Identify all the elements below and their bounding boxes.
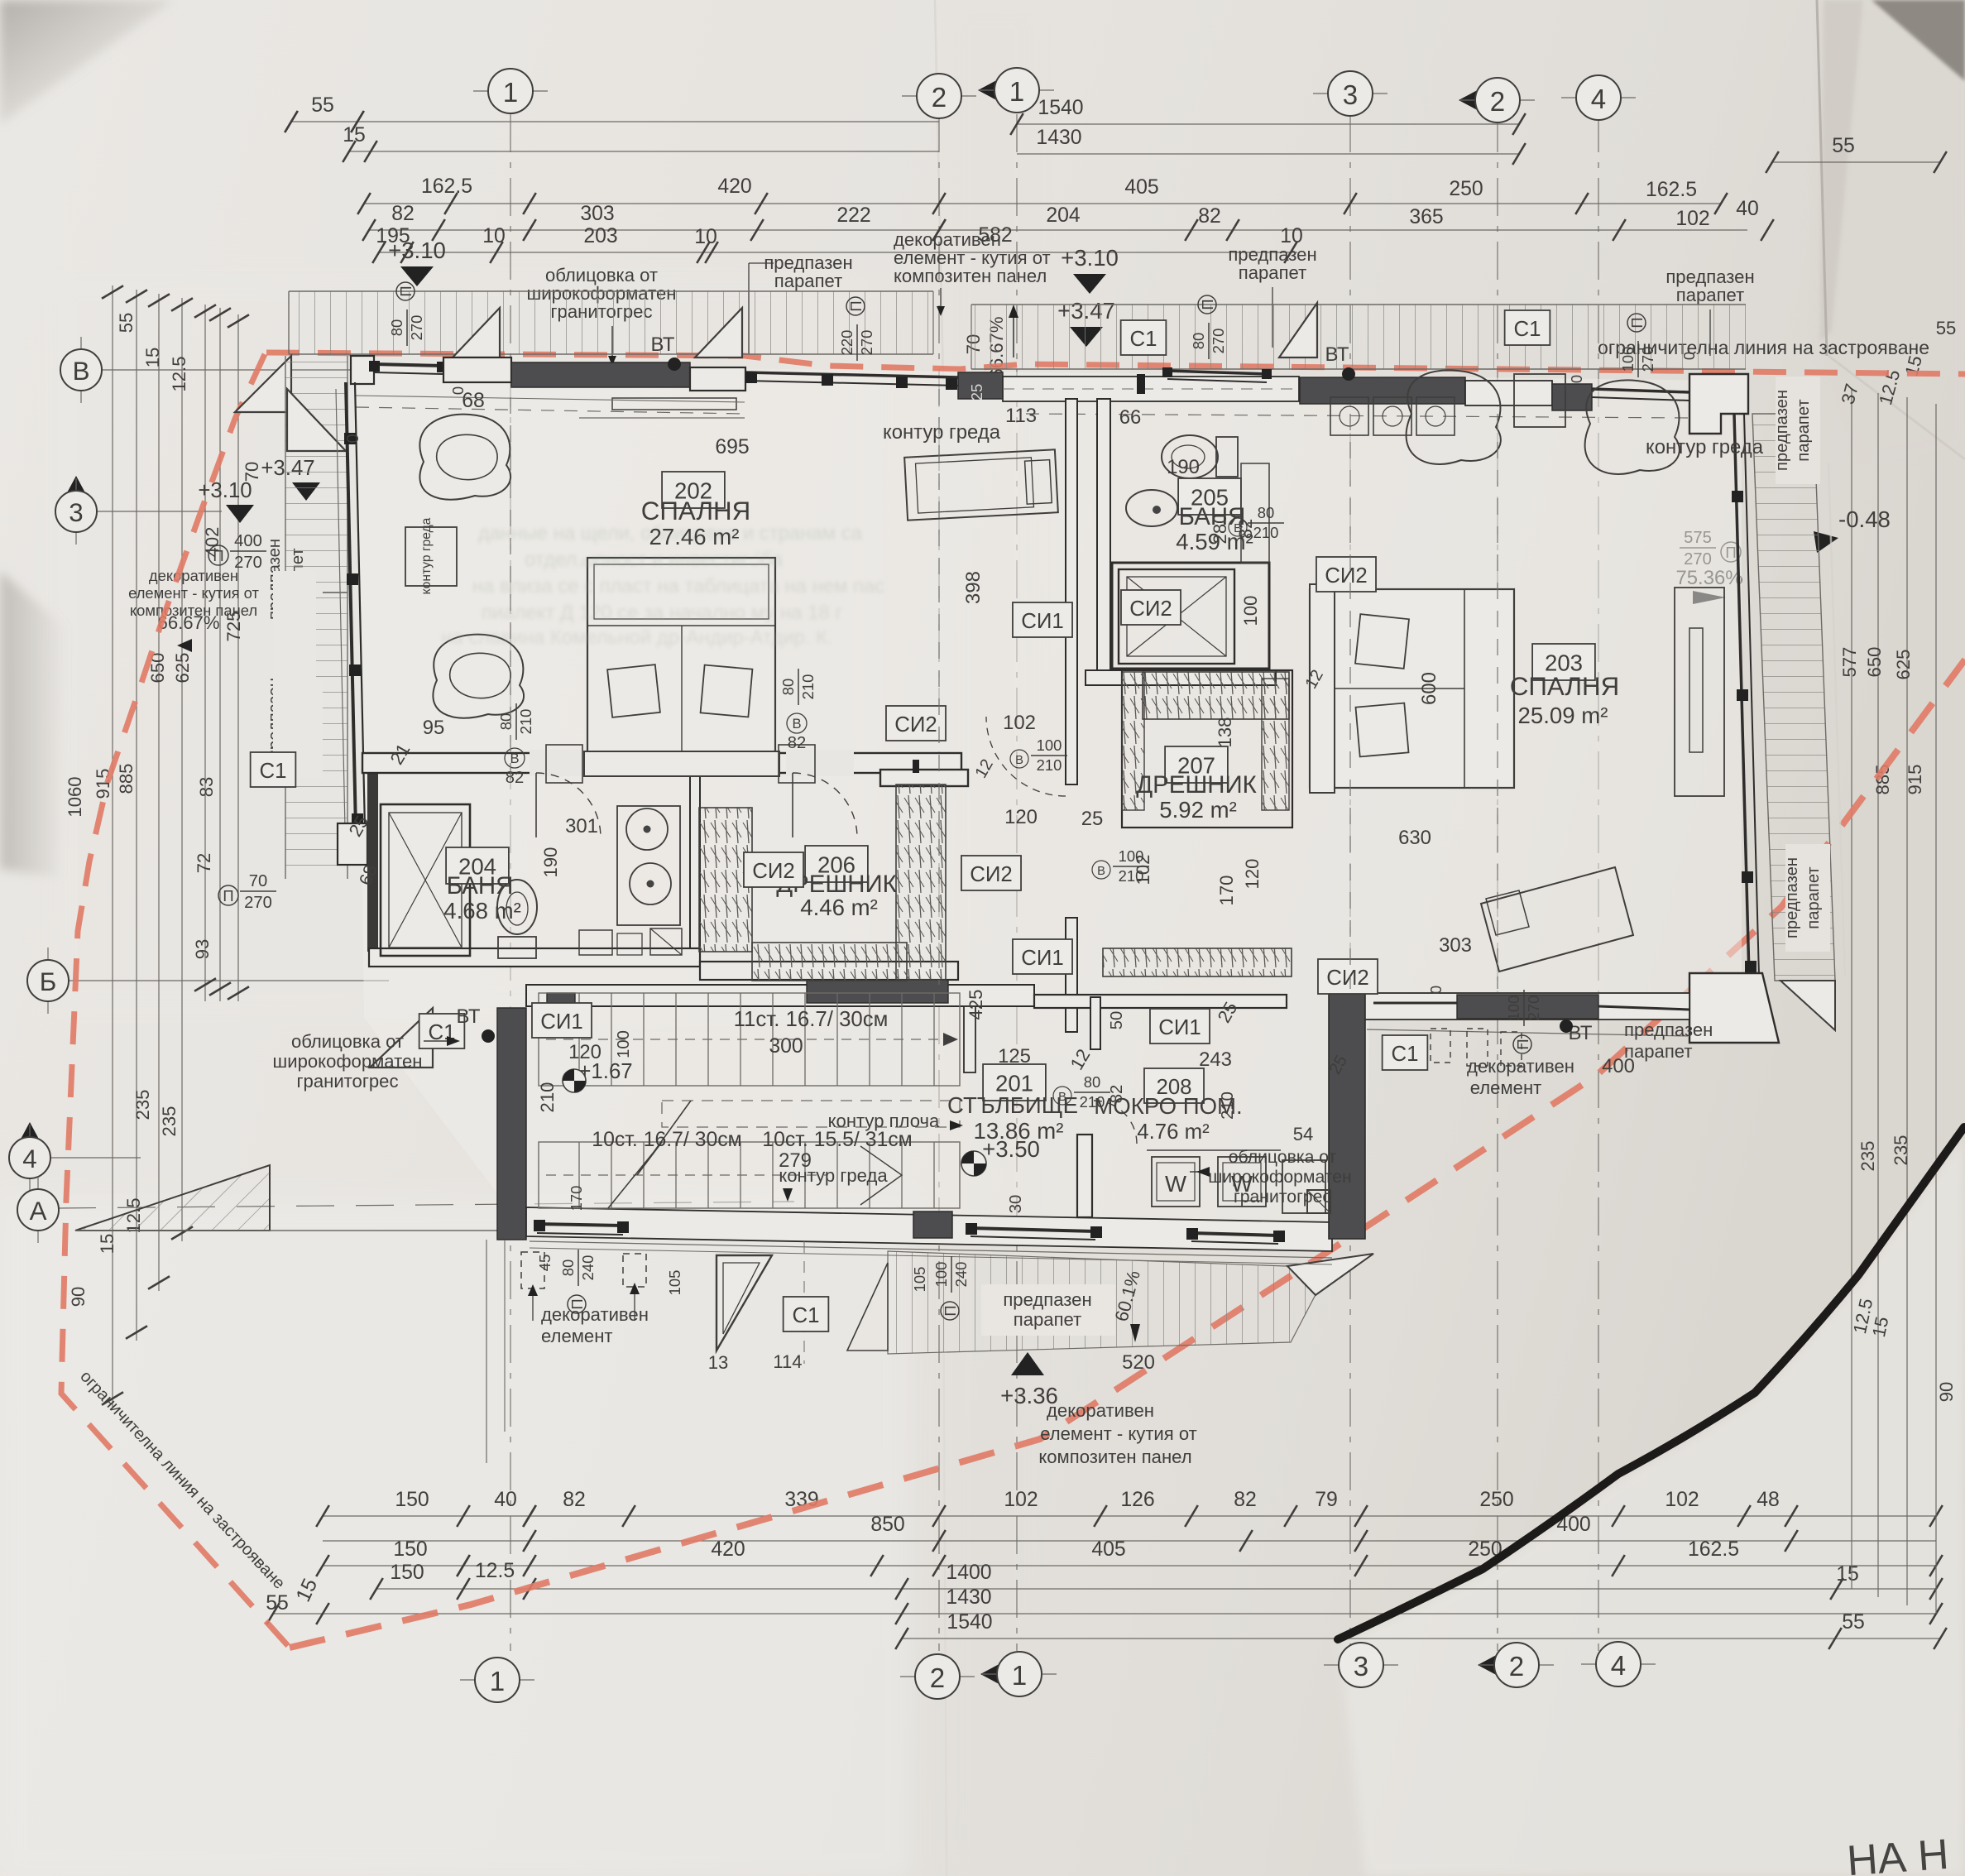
svg-text:162.5: 162.5 (1688, 1538, 1739, 1561)
svg-text:420: 420 (711, 1538, 745, 1561)
svg-text:83: 83 (196, 777, 217, 798)
svg-text:12.5: 12.5 (169, 356, 189, 391)
svg-text:120: 120 (1242, 859, 1263, 890)
svg-text:150: 150 (393, 1538, 427, 1561)
svg-text:3: 3 (69, 498, 83, 527)
svg-text:СИ1: СИ1 (1158, 1016, 1201, 1039)
svg-text:СИ2: СИ2 (1129, 597, 1172, 621)
svg-text:650: 650 (1864, 647, 1885, 678)
svg-text:контур греда: контур греда (419, 517, 434, 594)
svg-text:П: П (223, 887, 233, 904)
svg-text:2: 2 (930, 1663, 945, 1694)
svg-text:Б: Б (40, 967, 57, 996)
svg-text:СИ2: СИ2 (1326, 967, 1369, 990)
svg-text:235: 235 (132, 1090, 153, 1120)
svg-text:222: 222 (836, 204, 870, 227)
svg-text:102: 102 (1675, 208, 1709, 230)
svg-text:предпазен: предпазен (1783, 857, 1801, 938)
svg-text:520: 520 (1122, 1351, 1155, 1374)
svg-text:ВТ: ВТ (457, 1005, 481, 1028)
svg-text:100: 100 (1619, 347, 1637, 372)
svg-text:210: 210 (537, 1082, 558, 1113)
svg-text:декоративен: декоративен (149, 567, 238, 584)
svg-text:на влиза се с пласт на таблица: на влиза се с пласт на таблицата на нем … (472, 575, 884, 597)
svg-text:55: 55 (1832, 135, 1855, 157)
svg-text:12.5: 12.5 (475, 1560, 515, 1582)
svg-text:4: 4 (1611, 1651, 1626, 1682)
svg-text:850: 850 (870, 1514, 904, 1536)
svg-text:10ст. 15.5/ 31см: 10ст. 15.5/ 31см (762, 1129, 912, 1151)
svg-text:БАНЯ: БАНЯ (447, 872, 514, 900)
svg-text:240: 240 (579, 1255, 597, 1281)
svg-text:0: 0 (344, 434, 362, 443)
svg-text:138: 138 (1215, 717, 1235, 748)
svg-text:210: 210 (1253, 524, 1279, 541)
svg-text:0: 0 (1680, 352, 1698, 360)
svg-text:50: 50 (1108, 1011, 1126, 1029)
svg-text:контур греда: контур греда (883, 421, 1001, 444)
svg-text:елемент - кутия от: елемент - кутия от (1040, 1423, 1197, 1444)
svg-text:1: 1 (1012, 1661, 1027, 1691)
svg-text:4.46 m²: 4.46 m² (800, 895, 878, 920)
svg-text:270: 270 (1210, 329, 1227, 354)
svg-text:2: 2 (1509, 1652, 1524, 1682)
svg-text:В: В (1015, 754, 1023, 767)
svg-text:82: 82 (788, 734, 806, 752)
svg-text:102: 102 (1665, 1489, 1699, 1511)
svg-text:П: П (942, 1305, 959, 1316)
svg-text:100: 100 (1505, 996, 1522, 1021)
svg-text:600: 600 (1418, 672, 1440, 705)
svg-text:С1: С1 (1130, 328, 1157, 351)
svg-text:+3.10: +3.10 (1061, 245, 1119, 271)
svg-text:400: 400 (1602, 1055, 1635, 1077)
svg-text:0: 0 (1568, 375, 1585, 383)
svg-text:48: 48 (1757, 1489, 1780, 1511)
svg-text:126: 126 (1120, 1489, 1154, 1511)
svg-text:27.46 m²: 27.46 m² (649, 524, 740, 549)
svg-text:80: 80 (1084, 1073, 1100, 1091)
svg-text:предпазен: предпазен (1003, 1289, 1091, 1310)
svg-text:предпазен: предпазен (1624, 1020, 1713, 1040)
svg-text:СИ1: СИ1 (1021, 947, 1064, 970)
svg-text:3: 3 (1343, 80, 1358, 111)
svg-text:405: 405 (1124, 176, 1158, 199)
svg-text:+3.10: +3.10 (388, 237, 446, 263)
svg-text:-0.48: -0.48 (1838, 506, 1891, 532)
svg-text:15: 15 (142, 348, 163, 368)
svg-text:5.92 m²: 5.92 m² (1159, 797, 1237, 823)
svg-text:1400: 1400 (946, 1562, 991, 1584)
svg-text:66: 66 (1119, 406, 1142, 429)
svg-text:240: 240 (952, 1262, 970, 1288)
svg-text:СИ2: СИ2 (970, 863, 1013, 886)
svg-text:декоративен: декоративен (1467, 1056, 1574, 1077)
svg-text:СИ2: СИ2 (752, 860, 795, 883)
svg-text:82: 82 (1108, 1085, 1126, 1103)
svg-text:парапет: парапет (774, 271, 842, 291)
svg-text:парапет: парапет (1676, 285, 1744, 305)
svg-text:398: 398 (962, 571, 985, 604)
svg-text:150: 150 (390, 1562, 424, 1584)
svg-text:55: 55 (116, 313, 137, 333)
svg-text:300: 300 (769, 1035, 803, 1058)
svg-text:11ст. 16.7/ 30см: 11ст. 16.7/ 30см (734, 1008, 889, 1031)
svg-text:40: 40 (1736, 198, 1759, 220)
svg-text:210: 210 (1119, 867, 1144, 885)
svg-text:П: П (1514, 1039, 1531, 1049)
svg-text:70: 70 (249, 872, 267, 890)
svg-text:405: 405 (1091, 1538, 1125, 1561)
svg-text:577: 577 (1839, 647, 1860, 678)
svg-text:82: 82 (391, 203, 415, 225)
svg-text:170: 170 (1216, 876, 1237, 906)
svg-text:10: 10 (694, 226, 717, 248)
svg-text:220: 220 (838, 330, 855, 356)
svg-text:114: 114 (773, 1351, 802, 1372)
svg-text:55: 55 (1842, 1611, 1865, 1634)
svg-text:4.76 m²: 4.76 m² (1137, 1120, 1210, 1144)
svg-text:1540: 1540 (1038, 97, 1083, 119)
svg-text:П: П (213, 547, 223, 564)
svg-text:4: 4 (22, 1144, 36, 1173)
svg-text:72: 72 (194, 853, 214, 874)
svg-text:широкоформатен: широкоформатен (273, 1051, 423, 1072)
svg-text:контур плоча: контур плоча (828, 1111, 940, 1131)
svg-text:210: 210 (1037, 756, 1062, 774)
svg-text:отделചлност и инвестигරба: отделചлност и инвестигරба (525, 549, 784, 571)
svg-text:25: 25 (968, 384, 985, 401)
svg-text:С1: С1 (793, 1304, 820, 1327)
svg-text:55: 55 (311, 94, 334, 117)
svg-text:915: 915 (1905, 765, 1925, 795)
svg-text:102: 102 (1003, 712, 1036, 734)
svg-text:елемент: елемент (541, 1326, 613, 1346)
svg-text:80: 80 (779, 679, 797, 695)
svg-text:15: 15 (97, 1234, 117, 1255)
svg-text:102: 102 (1004, 1489, 1038, 1511)
svg-text:1060: 1060 (65, 776, 85, 817)
svg-text:210: 210 (1219, 1092, 1237, 1120)
svg-text:+1.67: +1.67 (578, 1060, 632, 1083)
svg-text:парапет: парапет (1014, 1309, 1081, 1330)
svg-text:декоративен: декоративен (1047, 1400, 1154, 1421)
svg-text:625: 625 (172, 653, 193, 684)
svg-text:170: 170 (568, 1186, 585, 1211)
svg-text:СИ2: СИ2 (1325, 564, 1368, 588)
svg-text:4: 4 (1591, 84, 1606, 115)
svg-text:204: 204 (1046, 204, 1081, 227)
svg-text:303: 303 (580, 203, 614, 225)
svg-text:100: 100 (615, 1030, 633, 1058)
svg-text:10ст. 16.7/ 30см: 10ст. 16.7/ 30см (592, 1129, 741, 1151)
svg-text:270: 270 (858, 330, 875, 356)
svg-text:предпазен: предпазен (1773, 390, 1791, 471)
svg-text:303: 303 (1439, 934, 1472, 957)
svg-text:НА Н: НА Н (1845, 1830, 1950, 1876)
svg-text:А: А (30, 1197, 47, 1226)
svg-text:парапет: парапет (1804, 866, 1823, 928)
svg-text:82: 82 (1234, 1489, 1257, 1511)
svg-text:гранитогрес: гранитогрес (1234, 1187, 1331, 1207)
svg-text:композитен панел: композитен панел (894, 266, 1047, 286)
svg-text:250: 250 (1449, 178, 1483, 200)
svg-text:80: 80 (497, 713, 515, 730)
svg-text:25: 25 (1081, 808, 1104, 830)
svg-text:декоративен: декоративен (541, 1304, 649, 1325)
svg-text:250: 250 (1479, 1489, 1513, 1511)
svg-text:ВТ: ВТ (651, 333, 675, 356)
svg-text:270: 270 (234, 554, 262, 572)
svg-text:В: В (73, 357, 90, 386)
svg-text:15: 15 (1868, 1315, 1893, 1339)
svg-text:203: 203 (583, 225, 617, 247)
svg-text:630: 630 (1398, 827, 1431, 849)
svg-text:С1: С1 (1392, 1043, 1419, 1066)
svg-text:243: 243 (1199, 1048, 1232, 1071)
svg-text:270: 270 (244, 894, 272, 912)
svg-text:0: 0 (1427, 986, 1445, 994)
svg-text:210: 210 (799, 674, 817, 700)
svg-text:82: 82 (1198, 205, 1221, 228)
svg-text:СИ1: СИ1 (540, 1010, 583, 1034)
svg-text:контур греда: контур греда (1646, 436, 1764, 458)
svg-text:П: П (1628, 317, 1646, 328)
svg-text:СПАЛНЯ: СПАЛНЯ (1510, 672, 1619, 701)
svg-text:82: 82 (506, 769, 524, 787)
svg-text:235: 235 (159, 1106, 180, 1137)
svg-text:210: 210 (1080, 1093, 1105, 1111)
svg-text:105: 105 (666, 1270, 683, 1296)
svg-text:235: 235 (1891, 1135, 1911, 1166)
svg-text:120: 120 (1004, 806, 1038, 828)
svg-text:1: 1 (503, 78, 518, 108)
svg-text:270: 270 (1525, 996, 1542, 1021)
svg-text:79: 79 (1315, 1489, 1338, 1511)
svg-text:парапет: парапет (1239, 262, 1306, 283)
svg-text:В: В (792, 716, 801, 732)
svg-text:695: 695 (715, 436, 749, 458)
svg-text:80: 80 (559, 1259, 577, 1276)
svg-text:365: 365 (1409, 206, 1443, 228)
svg-text:1: 1 (490, 1667, 505, 1697)
svg-text:ВТ: ВТ (1325, 343, 1349, 366)
svg-text:425: 425 (966, 990, 986, 1020)
svg-text:С1: С1 (1514, 318, 1541, 341)
svg-text:105: 105 (911, 1267, 928, 1293)
svg-text:55: 55 (266, 1592, 289, 1615)
svg-text:0: 0 (449, 386, 467, 395)
svg-text:на славина Комельной др-Андир: на славина Комельной др-Андир-Атдир. К. (441, 626, 832, 649)
svg-text:композитен панел: композитен панел (1038, 1447, 1191, 1467)
svg-text:С1: С1 (260, 760, 287, 783)
svg-text:облицовка от: облицовка от (291, 1031, 404, 1052)
svg-text:55: 55 (1936, 318, 1957, 338)
svg-text:В: В (510, 751, 519, 766)
svg-text:150: 150 (395, 1489, 429, 1511)
svg-text:1540: 1540 (947, 1611, 992, 1634)
svg-text:парапет: парапет (1795, 399, 1813, 461)
svg-text:270: 270 (1639, 347, 1656, 372)
svg-text:+3.10: +3.10 (198, 479, 252, 502)
svg-text:П: П (397, 285, 415, 296)
svg-text:4.68 m²: 4.68 m² (443, 898, 521, 924)
svg-text:90: 90 (1936, 1382, 1957, 1403)
svg-text:885: 885 (116, 764, 137, 794)
svg-text:80: 80 (388, 319, 405, 336)
svg-text:270: 270 (408, 315, 425, 341)
svg-text:210: 210 (517, 709, 534, 735)
svg-text:400: 400 (234, 532, 262, 550)
svg-text:625: 625 (1893, 650, 1914, 680)
svg-text:пиалект Д 120 се за начално му: пиалект Д 120 се за начално му на 18 г (482, 602, 843, 624)
svg-text:гранитогрес: гранитогрес (296, 1071, 398, 1092)
svg-text:90: 90 (68, 1287, 89, 1307)
svg-text:ДРЕШНИК: ДРЕШНИК (1136, 771, 1257, 799)
svg-text:П: П (1199, 299, 1216, 309)
svg-text:100: 100 (932, 1262, 950, 1288)
svg-text:162.5: 162.5 (1646, 179, 1697, 201)
svg-text:95: 95 (423, 717, 445, 739)
svg-text:190: 190 (540, 847, 561, 878)
svg-text:54: 54 (1293, 1124, 1314, 1144)
svg-text:1430: 1430 (1036, 127, 1081, 149)
svg-text:301: 301 (565, 815, 598, 837)
svg-text:3: 3 (1354, 1652, 1368, 1682)
svg-text:облицовка от: облицовка от (1229, 1148, 1337, 1167)
svg-text:контур греда: контур греда (779, 1165, 888, 1186)
svg-text:190: 190 (1167, 456, 1200, 478)
svg-text:93: 93 (192, 939, 213, 960)
svg-text:25.09 m²: 25.09 m² (1518, 703, 1608, 728)
svg-text:елемент - кутия от: елемент - кутия от (128, 584, 259, 602)
svg-text:45: 45 (536, 1255, 554, 1271)
svg-text:П: П (568, 1298, 586, 1309)
svg-text:113: 113 (1005, 405, 1037, 427)
svg-text:40: 40 (494, 1489, 517, 1511)
svg-text:100: 100 (1119, 847, 1144, 865)
svg-text:82: 82 (563, 1489, 586, 1511)
svg-text:80: 80 (1190, 333, 1207, 349)
svg-text:2: 2 (1490, 87, 1505, 118)
svg-text:80: 80 (1258, 504, 1274, 521)
svg-text:П: П (847, 300, 865, 311)
svg-text:+3.50: +3.50 (982, 1136, 1040, 1162)
svg-text:СИ2: СИ2 (894, 713, 937, 736)
svg-text:13: 13 (708, 1352, 729, 1373)
svg-text:125: 125 (998, 1045, 1031, 1068)
svg-text:W: W (1165, 1171, 1186, 1197)
svg-text:2: 2 (932, 83, 947, 113)
svg-text:В: В (1058, 1091, 1066, 1104)
svg-text:широкоформатен: широкоформатен (1208, 1168, 1352, 1187)
svg-text:420: 420 (717, 175, 751, 198)
svg-text:30: 30 (1007, 1195, 1025, 1213)
svg-text:100: 100 (1240, 596, 1261, 626)
svg-text:В: В (1234, 522, 1242, 535)
svg-text:235: 235 (1857, 1141, 1878, 1172)
svg-text:елемент: елемент (1470, 1077, 1542, 1098)
svg-text:100: 100 (1037, 736, 1062, 754)
svg-text:162.5: 162.5 (421, 175, 472, 198)
svg-text:СПАЛНЯ: СПАЛНЯ (641, 497, 750, 525)
svg-text:1: 1 (1009, 77, 1024, 108)
svg-text:СИ1: СИ1 (1021, 610, 1064, 633)
svg-text:1430: 1430 (946, 1586, 991, 1609)
svg-text:725: 725 (223, 612, 244, 642)
svg-text:В: В (1097, 865, 1105, 878)
svg-text:280: 280 (1210, 514, 1230, 545)
